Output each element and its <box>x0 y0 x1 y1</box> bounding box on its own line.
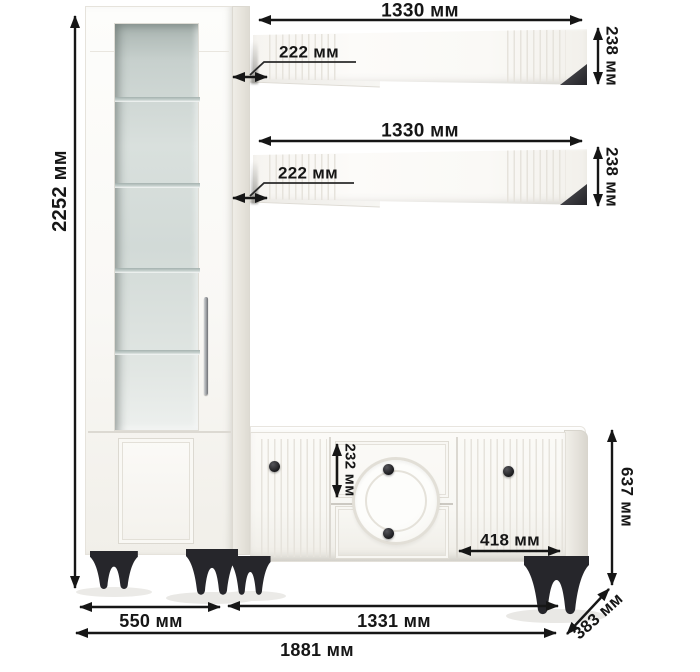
dim-shelf-top-width-label: 1330 мм <box>381 2 459 21</box>
dim-total-height-label: 2252 мм <box>50 150 70 232</box>
shelf-fluting-right <box>502 150 566 202</box>
dim-shelf-top-depth-label: 222 мм <box>279 44 339 61</box>
knob-bottom-drawer <box>383 528 394 539</box>
dim-depth-label: 383 мм <box>570 590 626 643</box>
knob-right-door <box>503 466 514 477</box>
tv-stand-divider <box>456 437 458 559</box>
tv-stand-leg <box>230 556 589 614</box>
dim-tvstand-height-label: 637 мм <box>619 467 636 527</box>
tv-door-left-fluting <box>256 439 327 557</box>
dim-shelf-bottom-depth-label: 222 мм <box>278 165 338 182</box>
door-handle <box>204 297 208 395</box>
cabinet-leg <box>90 549 238 595</box>
dim-shelf-top-height-label: 238 мм <box>604 26 621 86</box>
dim-shelf-bottom-width-label: 1330 мм <box>381 122 459 141</box>
display-cabinet <box>85 6 250 555</box>
lower-door-panel <box>118 438 194 544</box>
dim-shelf-bottom-height-label: 238 мм <box>604 147 621 207</box>
glass-door <box>114 23 199 431</box>
dim-cabinet-width-label: 550 мм <box>119 612 182 630</box>
lower-door-seam <box>88 431 231 433</box>
glass-shelf <box>115 97 200 102</box>
glass-shelf <box>115 268 200 273</box>
circle-trim-inner <box>365 470 427 532</box>
dim-drawer-height-label: 232 мм <box>343 443 358 496</box>
knob-top-drawer <box>383 464 394 475</box>
dim-tvstand-width-label: 1331 мм <box>357 612 431 630</box>
tv-stand-divider <box>329 437 331 559</box>
shelf-wall-shadow <box>251 161 258 204</box>
cabinet-front <box>85 6 232 555</box>
dim-total-width-label: 1881 мм <box>280 641 354 659</box>
cabinet-side <box>232 6 250 555</box>
shelf-wall-shadow <box>251 41 258 84</box>
tv-stand-side <box>564 430 588 562</box>
glass-shelf <box>115 183 200 188</box>
shelf-fluting-right <box>502 30 566 82</box>
dim-door-right-width-label: 418 мм <box>480 532 540 549</box>
furniture-dimension-diagram: 2252 мм 1330 мм 238 мм 222 мм 1330 мм 23… <box>0 0 700 672</box>
knob-left-door <box>269 461 280 472</box>
glass-shelf <box>115 350 200 355</box>
